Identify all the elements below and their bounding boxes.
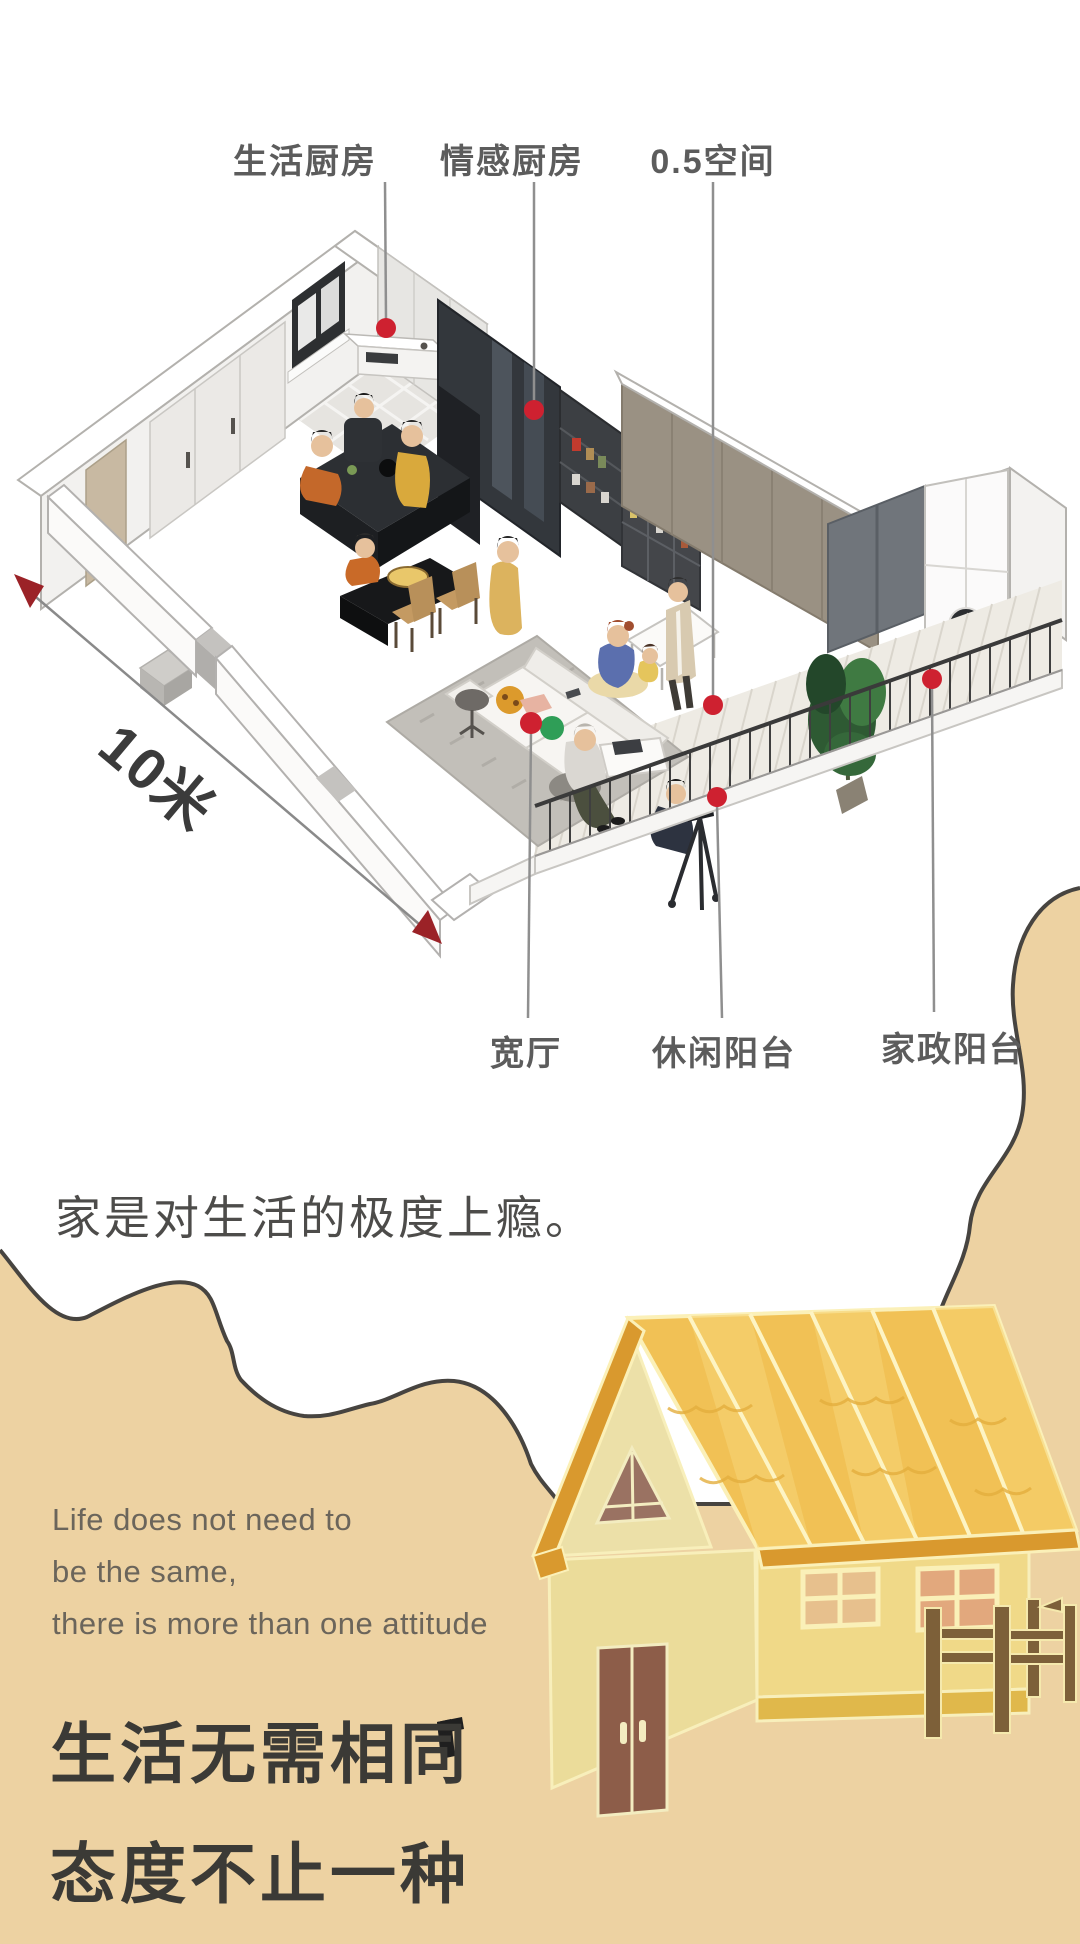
- tagline-english: Life does not need to be the same, there…: [52, 1494, 488, 1650]
- tagline-line-1: Life does not need to: [52, 1494, 488, 1546]
- slogan-text: 家是对生活的极度上瘾。: [55, 1182, 594, 1248]
- title-line-2: 态度不止一种: [50, 1814, 470, 1934]
- label-emotion-kitchen: 情感厨房: [440, 134, 584, 183]
- floor-plan-illustration: [18, 231, 1066, 956]
- tagline-line-2: be the same,: [52, 1546, 488, 1598]
- label-leisure-balcony: 休闲阳台: [652, 1026, 796, 1075]
- illustration-background: [0, 0, 1080, 1944]
- label-life-kitchen: 生活厨房: [233, 134, 377, 183]
- label-wide-hall: 宽厅: [490, 1026, 562, 1075]
- poster-page: 生活厨房 情感厨房 0.5空间 宽厅 休闲阳台 家政阳台 10米 家是对生活的极…: [0, 0, 1080, 1944]
- label-housework-balcony: 家政阳台: [881, 1022, 1025, 1071]
- tagline-line-3: there is more than one attitude: [52, 1598, 488, 1650]
- title-line-1: 生活无需相同: [50, 1694, 470, 1814]
- label-half-space: 0.5空间: [650, 134, 775, 183]
- main-title: 生活无需相同 态度不止一种: [50, 1694, 470, 1934]
